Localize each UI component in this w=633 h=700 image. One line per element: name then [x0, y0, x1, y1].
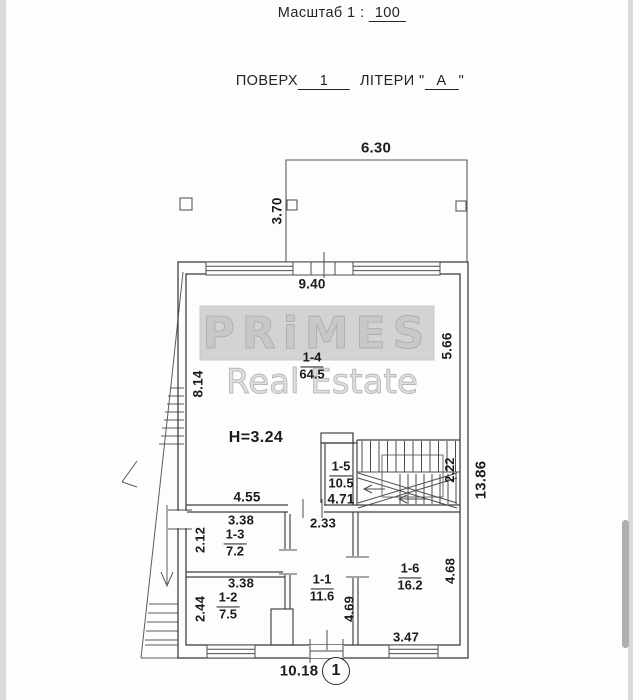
room-id: 1-6 — [399, 561, 422, 578]
room-label-1-1: 1-1 11.6 — [310, 572, 335, 603]
dim-room13-top: 3.38 — [228, 513, 254, 528]
dim-room14-right: 5.66 — [440, 332, 455, 359]
dim-hall-bottom: 4.71 — [327, 492, 354, 507]
dim-room13-left: 2.12 — [193, 527, 208, 553]
window-bottom-right — [389, 645, 438, 658]
dim-room14-bottom: 4.55 — [233, 490, 260, 505]
column-right — [456, 201, 466, 211]
site-boundary-line — [141, 272, 183, 658]
dim-total-width: 10.18 — [280, 663, 319, 680]
dim-total-height: 13.86 — [473, 461, 490, 500]
window-bottom-left — [207, 645, 255, 658]
flue — [321, 433, 353, 443]
window-top-right — [353, 262, 440, 275]
room-id: 1-5 — [330, 459, 353, 476]
door-11-to-16 — [346, 556, 369, 578]
entry-arrow — [122, 461, 137, 487]
room-area: 7.2 — [224, 544, 247, 559]
room-label-1-5: 1-5 10.5 — [328, 459, 353, 490]
room-area: 11.6 — [310, 589, 335, 604]
floorplan-page: Масштаб 1 : 100 ПОВЕРХ1ЛІТЕРИ "А" — [0, 0, 633, 700]
room-label-1-3: 1-3 7.2 — [224, 527, 247, 558]
ceiling-height-label: H=3.24 — [229, 429, 283, 447]
terrace-door — [293, 252, 353, 278]
room-area: 16.2 — [397, 578, 422, 593]
duct-notch — [271, 609, 293, 645]
dim-terrace-width: 6.30 — [361, 140, 391, 157]
room-area: 64.5 — [299, 367, 324, 382]
room-area: 10.5 — [328, 476, 353, 491]
dim-room16-right: 4.68 — [443, 558, 458, 584]
dim-room14-width: 9.40 — [298, 277, 325, 292]
room-id: 1-4 — [301, 350, 324, 367]
room-label-1-6: 1-6 16.2 — [397, 561, 422, 592]
room-label-1-4: 1-4 64.5 — [299, 350, 324, 381]
dim-room12-left: 2.44 — [193, 596, 208, 622]
room-id: 1-1 — [311, 572, 334, 589]
window-top-left — [206, 262, 293, 275]
stair-direction-arrow — [161, 505, 173, 586]
axis-marker-number: 1 — [332, 662, 341, 680]
column-mid — [287, 200, 297, 210]
door-13-to-11 — [279, 549, 297, 575]
dim-room16-bottom: 3.47 — [393, 630, 419, 645]
column-left — [180, 198, 192, 210]
dim-terrace-depth: 3.70 — [270, 197, 285, 224]
dim-room14-left: 8.14 — [191, 370, 206, 397]
dim-room12-top: 3.38 — [228, 576, 254, 591]
axis-marker-circle: 1 — [322, 657, 350, 685]
room-label-1-2: 1-2 7.5 — [217, 590, 240, 621]
terrace-outline — [180, 160, 467, 262]
room-area: 7.5 — [217, 607, 240, 622]
door-left-wall — [168, 510, 192, 529]
dim-room11-top: 2.33 — [310, 516, 336, 531]
room-id: 1-3 — [224, 527, 247, 544]
dim-stair-width: 2.22 — [443, 457, 457, 482]
exterior-stair — [122, 272, 184, 658]
dim-room11-right: 4.69 — [342, 596, 357, 622]
room-id: 1-2 — [217, 590, 240, 607]
